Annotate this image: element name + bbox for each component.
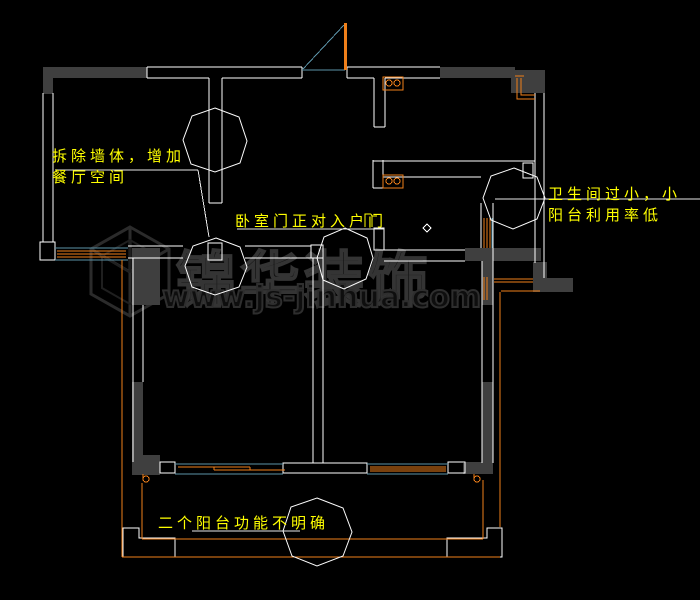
floorplan-drawing: [0, 0, 700, 600]
floorplan-canvas: 锦华装饰 www.js-jinhua.com: [0, 0, 700, 600]
revision-clouds: [183, 108, 545, 566]
revision-cloud: [317, 228, 373, 289]
entry-door: [344, 23, 347, 70]
door-leaf: [344, 23, 347, 70]
rain-pipe-icon: [474, 476, 480, 482]
annotation-bathroom-small: 卫生间过小，小阳台利用率低: [548, 184, 696, 226]
revision-cloud: [185, 238, 247, 295]
rain-pipe-icon: [143, 476, 149, 482]
annotation-balcony-function: 二个阳台功能不明确: [158, 513, 329, 534]
annotation-demolish-wall: 拆除墙体，增加餐厅空间: [52, 146, 200, 188]
annotation-bedroom-door: 卧室门正对入户门: [235, 211, 387, 232]
walls: [40, 67, 544, 557]
